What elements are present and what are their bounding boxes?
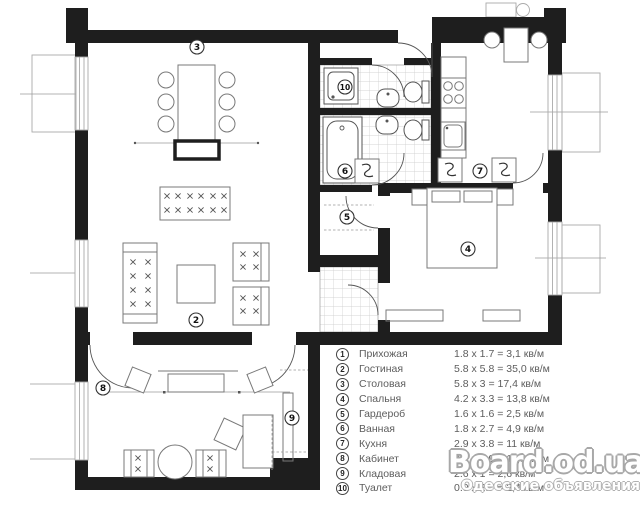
legend-row: 9 Кладовая 2.6 x 1 = 2,6 кв/м — [336, 466, 636, 481]
nightstand — [412, 189, 427, 205]
legend-row: 8 Кабинет 2.4 x 4.9 = 11,8 кв/м — [336, 451, 636, 466]
armchair — [233, 243, 269, 281]
bed — [427, 188, 497, 268]
chair-symbol — [355, 159, 379, 183]
dining-chair — [219, 94, 235, 110]
legend-room-name: Кухня — [359, 438, 454, 450]
dining-table — [178, 65, 215, 145]
legend-row: 3 Столовая 5.8 x 3 = 17,4 кв/м — [336, 377, 636, 392]
desk-chair — [125, 367, 151, 393]
chair — [214, 418, 246, 450]
legend-room-number: 6 — [336, 422, 349, 435]
window-kitchen — [548, 75, 562, 150]
chair-symbol — [438, 158, 462, 182]
bedroom-furniture — [386, 188, 520, 321]
room-label-number: 6 — [342, 167, 348, 177]
legend-room-number: 4 — [336, 393, 349, 406]
legend-room-name: Ванная — [359, 423, 454, 435]
legend-room-number: 7 — [336, 437, 349, 450]
coffee-table — [177, 265, 215, 303]
legend-room-number: 10 — [336, 482, 349, 495]
kitchen-stool — [531, 32, 547, 48]
legend-row: 5 Гардероб 1.6 x 1.6 = 2,5 кв/м — [336, 407, 636, 422]
round-table — [158, 445, 192, 479]
legend-room-dimensions: 5.8 x 5.8 = 35,0 кв/м — [454, 363, 550, 375]
window-office — [75, 382, 88, 460]
window-bedroom — [548, 222, 562, 295]
dining-chair — [158, 94, 174, 110]
room-label-number: 10 — [340, 83, 350, 92]
armchair — [233, 287, 269, 325]
room-label-number: 8 — [100, 384, 106, 394]
legend-row: 2 Гостиная 5.8 x 5.8 = 35,0 кв/м — [336, 362, 636, 377]
dresser — [483, 310, 520, 321]
nightstand — [497, 189, 513, 205]
window-dining — [75, 57, 88, 130]
legend-row: 6 Ванная 1.8 x 2.7 = 4,9 кв/м — [336, 421, 636, 436]
dining-chair — [158, 116, 174, 132]
dining-furniture — [134, 65, 259, 159]
legend-room-name: Гостиная — [359, 363, 454, 375]
dresser — [386, 310, 443, 321]
living-furniture — [123, 187, 269, 325]
office-armchair — [196, 450, 226, 477]
legend-row: 1 Прихожая 1.8 x 1.7 = 3,1 кв/м — [336, 347, 636, 362]
room-label-number: 9 — [289, 414, 295, 424]
legend: 1 Прихожая 1.8 x 1.7 = 3,1 кв/м 2 Гостин… — [336, 347, 636, 496]
rug — [160, 187, 230, 220]
kitchen-table — [504, 28, 528, 62]
floorplan-stage: 2345678910 1 Прихожая 1.8 x 1.7 = 3,1 кв… — [0, 0, 640, 520]
legend-room-name: Гардероб — [359, 408, 454, 420]
kitchen-stool — [484, 32, 500, 48]
legend-room-number: 1 — [336, 348, 349, 361]
legend-room-dimensions: 2.6 x 1 = 2,6 кв/м — [454, 468, 535, 480]
room-label-number: 3 — [194, 43, 200, 53]
desk — [168, 374, 224, 392]
legend-room-name: Туалет — [359, 482, 454, 494]
legend-room-name: Столовая — [359, 378, 454, 390]
sofa — [123, 243, 157, 323]
window-living — [75, 240, 88, 307]
legend-room-number: 5 — [336, 408, 349, 421]
legend-room-name: Кабинет — [359, 453, 454, 465]
toilet — [404, 120, 422, 140]
toilet — [404, 82, 422, 102]
legend-room-name: Кладовая — [359, 468, 454, 480]
legend-room-dimensions: 1.6 x 1.6 = 2,5 кв/м — [454, 408, 544, 420]
sink — [376, 116, 398, 134]
dining-chair — [158, 72, 174, 88]
sideboard — [175, 141, 219, 159]
office-furniture — [100, 367, 290, 479]
office-armchair — [124, 450, 154, 477]
legend-room-dimensions: 4.2 x 3.3 = 13,8 кв/м — [454, 393, 550, 405]
legend-row: 10 Туалет 0.9 x 2.7 = 2,4 кв/м — [336, 481, 636, 496]
dining-chair — [219, 72, 235, 88]
legend-row: 4 Спальня 4.2 x 3.3 = 13,8 кв/м — [336, 392, 636, 407]
legend-room-number: 8 — [336, 452, 349, 465]
legend-room-dimensions: 2.4 x 4.9 = 11,8 кв/м — [454, 453, 549, 465]
chair-symbol — [492, 158, 516, 182]
legend-room-number: 3 — [336, 378, 349, 391]
legend-room-dimensions: 1.8 x 1.7 = 3,1 кв/м — [454, 348, 544, 360]
room-label-number: 4 — [465, 245, 471, 255]
cabinet — [243, 415, 273, 468]
sink — [377, 89, 399, 107]
legend-room-dimensions: 5.8 x 3 = 17,4 кв/м — [454, 378, 541, 390]
legend-room-dimensions: 0.9 x 2.7 = 2,4 кв/м — [454, 482, 544, 494]
room-label-number: 7 — [477, 167, 483, 177]
room-label-number: 2 — [193, 316, 199, 326]
legend-room-dimensions: 2.9 x 3.8 = 11 кв/м — [454, 438, 540, 450]
legend-room-number: 9 — [336, 467, 349, 480]
legend-room-name: Спальня — [359, 393, 454, 405]
legend-room-number: 2 — [336, 363, 349, 376]
room-label-number: 5 — [344, 213, 350, 223]
legend-room-dimensions: 1.8 x 2.7 = 4,9 кв/м — [454, 423, 544, 435]
desk-chair — [247, 367, 273, 393]
dining-chair — [219, 116, 235, 132]
legend-room-name: Прихожая — [359, 348, 454, 360]
legend-row: 7 Кухня 2.9 x 3.8 = 11 кв/м — [336, 436, 636, 451]
